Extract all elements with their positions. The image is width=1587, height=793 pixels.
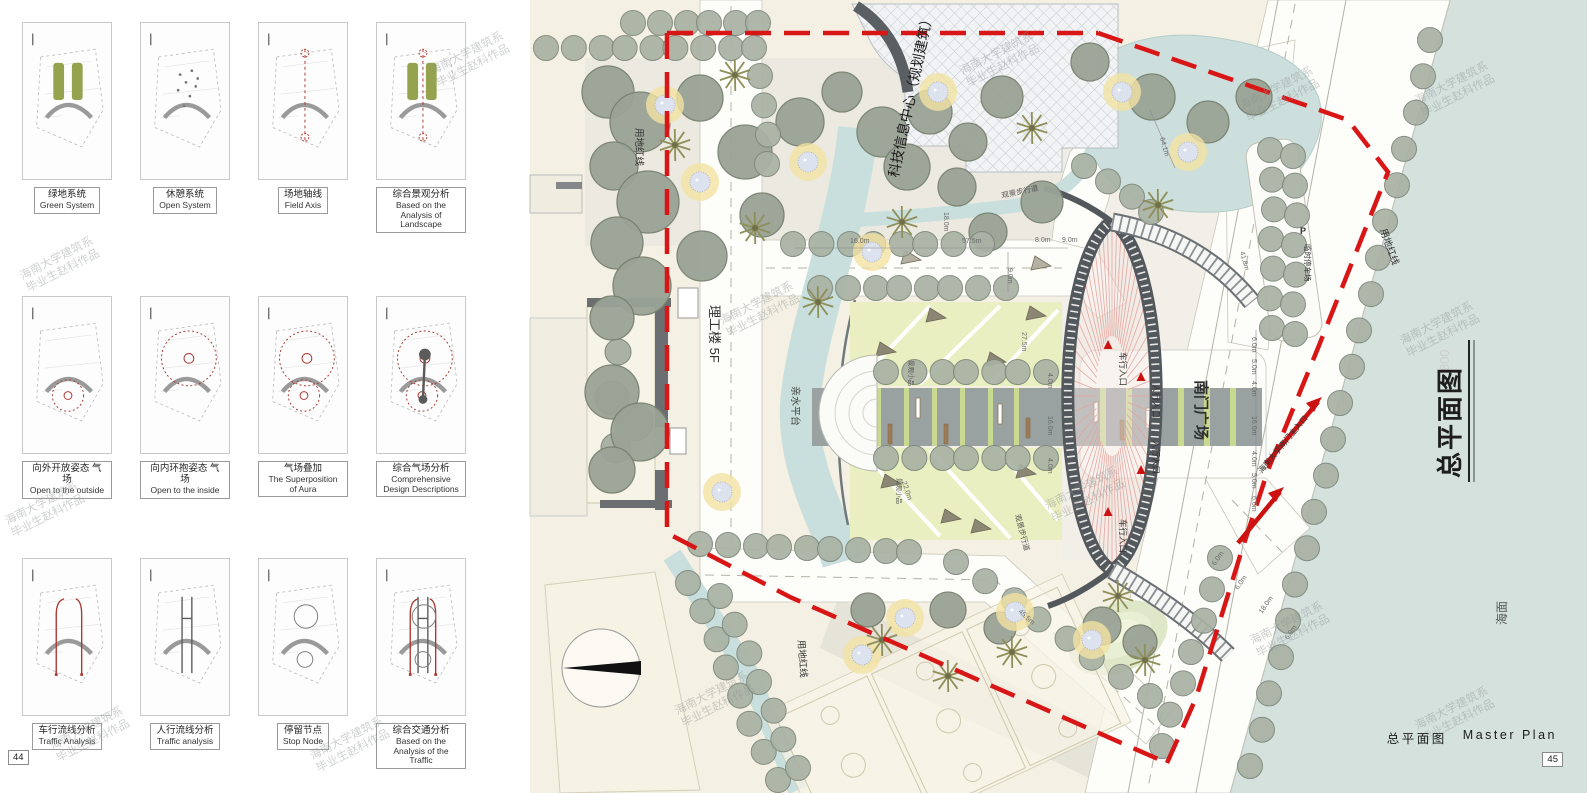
analysis-diagram: 停留节点 Stop Node xyxy=(258,558,348,769)
diagram-label: 气场叠加 The Superposition of Aura xyxy=(258,461,348,497)
analysis-diagram: 休憩系统 Open System xyxy=(140,22,230,233)
diagram-thumbnail xyxy=(376,558,466,716)
feature-label: 景观小品 xyxy=(907,360,916,386)
diagram-sketch xyxy=(377,559,465,715)
waterfront-label: 亲水平台 xyxy=(789,386,802,426)
site-outline xyxy=(33,34,103,147)
analysis-diagram: 场地轴线 Field Axis xyxy=(258,22,348,233)
diagram-label: 车行流线分析 Traffic Analysis xyxy=(32,723,101,750)
north-compass xyxy=(562,629,641,707)
edge-building-south xyxy=(530,318,587,516)
caption-en: Master Plan xyxy=(1463,728,1557,747)
site-outline xyxy=(151,308,221,421)
analysis-row-traffic: 车行流线分析 Traffic Analysis xyxy=(22,558,466,769)
dimension-label: 18.0m xyxy=(942,212,949,232)
diagram-label-en: Stop Node xyxy=(283,737,323,747)
dimension-label: 6.0m xyxy=(1250,337,1257,353)
parking-p-label: P xyxy=(1300,226,1306,236)
diagram-sketch xyxy=(141,23,229,179)
parking-label: 临时停车场 xyxy=(1303,244,1313,282)
analysis-diagram: 向外开放姿态 气场 Open to the outside xyxy=(22,296,112,499)
site-outline xyxy=(151,34,221,147)
diagram-label-en: Open System xyxy=(159,201,211,211)
diagram-label: 综合景观分析 Based on the Analysis of Landscap… xyxy=(376,187,466,233)
diagram-label-en: Traffic analysis xyxy=(156,737,213,747)
diagram-thumbnail xyxy=(258,22,348,180)
site-outline xyxy=(33,570,103,683)
gatehouse-stub xyxy=(678,288,698,318)
plan-caption: 总平面图 Master Plan xyxy=(1387,728,1557,747)
site-outline xyxy=(387,34,457,147)
diagram-label-en: Comprehensive Design Descriptions xyxy=(382,475,460,495)
diagram-label-en: Based on the Analysis of Landscape xyxy=(382,201,460,230)
analysis-diagram: 车行流线分析 Traffic Analysis xyxy=(22,558,112,769)
diagram-label-en: Open to the outside xyxy=(28,486,106,496)
dimension-label: 4.0m xyxy=(1250,381,1257,397)
diagram-label: 综合气场分析 Comprehensive Design Descriptions xyxy=(376,461,466,497)
feature-label: 景观小品 xyxy=(895,478,904,504)
diagram-thumbnail xyxy=(140,558,230,716)
dimension-label: 6.0m xyxy=(1250,496,1257,512)
dimension-label: 16.0m xyxy=(1250,416,1257,436)
analysis-diagram: 人行流线分析 Traffic analysis xyxy=(140,558,230,769)
analysis-diagram: 综合气场分析 Comprehensive Design Descriptions xyxy=(376,296,466,499)
diagram-thumbnail xyxy=(140,296,230,454)
diagram-thumbnail xyxy=(258,296,348,454)
diagram-sketch xyxy=(23,297,111,453)
page-number-left: 44 xyxy=(8,750,29,765)
plaza-label: 南门广场 xyxy=(1192,380,1210,440)
diagram-thumbnail xyxy=(22,296,112,454)
diagram-label: 向外开放姿态 气场 Open to the outside xyxy=(22,461,112,499)
diagram-label-en: The Superposition of Aura xyxy=(264,475,342,495)
diagram-label-en: Open to the inside xyxy=(146,486,224,496)
site-outline xyxy=(151,570,221,683)
diagram-thumbnail xyxy=(22,22,112,180)
diagram-thumbnail xyxy=(22,558,112,716)
redline-label-nw: 用地红线 xyxy=(633,128,645,167)
diagram-sketch xyxy=(23,23,111,179)
page-number-right: 45 xyxy=(1542,752,1563,767)
vehicle-entry-label: 车行入口 xyxy=(1118,352,1128,386)
dimension-label: 4.0m xyxy=(1046,373,1053,389)
diagram-label: 绿地系统 Green System xyxy=(34,187,100,214)
diagram-label-zh: 向内环抱姿态 气场 xyxy=(146,464,224,486)
dimension-label: 9.0m xyxy=(1062,237,1078,244)
dimension-label: 27.5m xyxy=(1020,332,1027,352)
analysis-diagram: 综合交通分析 Based on the Analysis of the Traf… xyxy=(376,558,466,769)
diagram-label-en: Field Axis xyxy=(284,201,322,211)
diagram-label-zh: 向外开放姿态 气场 xyxy=(28,464,106,486)
analysis-row-aura: 向外开放姿态 气场 Open to the outside xyxy=(22,296,466,499)
site-outline xyxy=(387,570,457,683)
diagram-sketch xyxy=(377,297,465,453)
diagram-label-en: Traffic Analysis xyxy=(38,737,95,747)
diagram-thumbnail xyxy=(258,558,348,716)
vehicle-entry-label: 车行入口 xyxy=(1118,519,1128,553)
diagram-label: 向内环抱姿态 气场 Open to the inside xyxy=(140,461,230,499)
sea-label: 海面 xyxy=(1494,601,1509,625)
diagram-sketch xyxy=(141,559,229,715)
portfolio-spread: 16.0m57.5m8.0m9.0m18.0m9.0m27.5m64.1m41.… xyxy=(0,0,1587,793)
dimension-label: 4.0m xyxy=(1250,451,1257,467)
dimension-label: 5.0m xyxy=(1250,473,1257,489)
diagram-label: 停留节点 Stop Node xyxy=(277,723,329,750)
diagram-thumbnail xyxy=(376,22,466,180)
dimension-label: 8.0m xyxy=(1035,237,1051,244)
caption-zh: 总平面图 xyxy=(1387,728,1447,747)
diagram-label-en: Based on the Analysis of the Traffic xyxy=(382,737,460,766)
site-outline xyxy=(269,308,339,421)
diagram-sketch xyxy=(259,297,347,453)
edge-building-north xyxy=(530,175,582,213)
dimension-label: 16.0m xyxy=(1046,416,1053,436)
diagram-thumbnail xyxy=(140,22,230,180)
diagram-sketch xyxy=(23,559,111,715)
dimension-label: 9.0m xyxy=(1006,268,1013,284)
diagram-thumbnail xyxy=(376,296,466,454)
pedestrian-entry-label: 人行入口 xyxy=(1151,440,1161,474)
dimension-label: 57.5m xyxy=(962,238,982,245)
ligong-label: 理工楼 5F xyxy=(707,305,722,363)
diagram-label: 综合交通分析 Based on the Analysis of the Traf… xyxy=(376,723,466,769)
dimension-label: 4.0m xyxy=(1046,458,1053,474)
site-outline xyxy=(387,308,457,421)
diagram-label-en: Green System xyxy=(40,201,94,211)
analysis-diagram: 气场叠加 The Superposition of Aura xyxy=(258,296,348,499)
plan-title-vertical: 总平面图 xyxy=(1435,366,1465,478)
site-outline xyxy=(33,308,103,421)
diagram-label: 人行流线分析 Traffic analysis xyxy=(150,723,219,750)
diagram-sketch xyxy=(377,23,465,179)
analysis-diagram: 综合景观分析 Based on the Analysis of Landscap… xyxy=(376,22,466,233)
dimension-label: 16.0m xyxy=(850,238,870,245)
diagram-label: 休憩系统 Open System xyxy=(153,187,217,214)
diagram-sketch xyxy=(259,23,347,179)
pedestrian-entry-label: 人行入口 xyxy=(1151,384,1161,418)
site-outline xyxy=(269,570,339,683)
diagram-label: 场地轴线 Field Axis xyxy=(278,187,328,214)
dimension-label: 5.0m xyxy=(1250,359,1257,375)
analysis-diagram: 绿地系统 Green System xyxy=(22,22,112,233)
analysis-diagram: 向内环抱姿态 气场 Open to the inside xyxy=(140,296,230,499)
diagram-sketch xyxy=(141,297,229,453)
analysis-row-landscape: 绿地系统 Green System xyxy=(22,22,466,233)
site-outline xyxy=(269,34,339,147)
diagram-sketch xyxy=(259,559,347,715)
